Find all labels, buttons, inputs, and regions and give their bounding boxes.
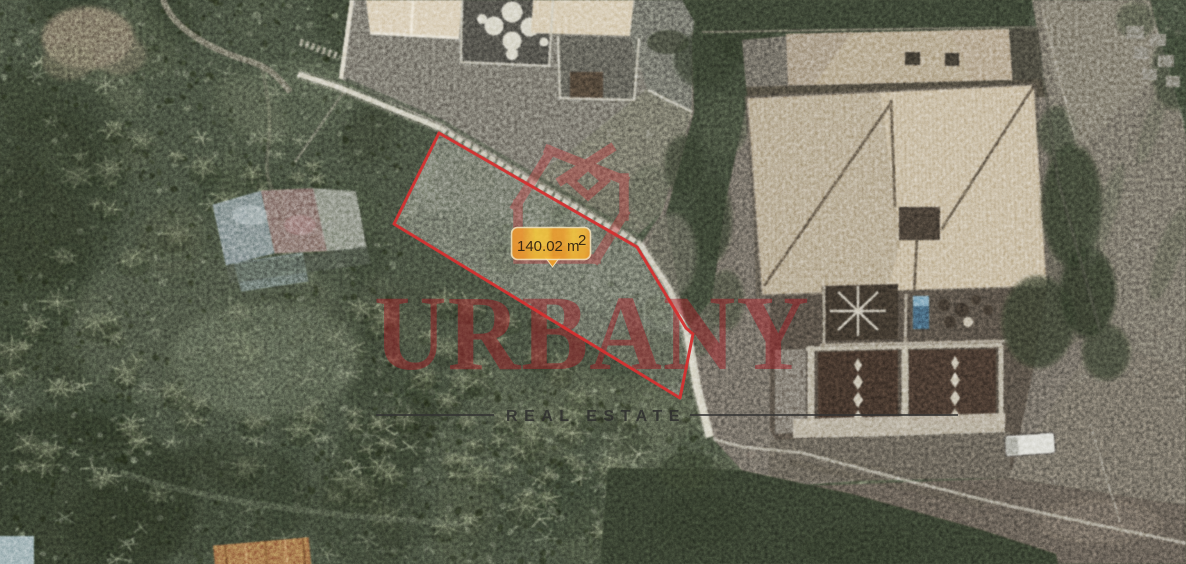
svg-text:2: 2 [578, 232, 586, 249]
svg-text:140.02 m: 140.02 m [517, 238, 580, 255]
svg-text:REAL ESTATE: REAL ESTATE [506, 408, 686, 425]
svg-text:URBANY: URBANY [374, 275, 810, 393]
